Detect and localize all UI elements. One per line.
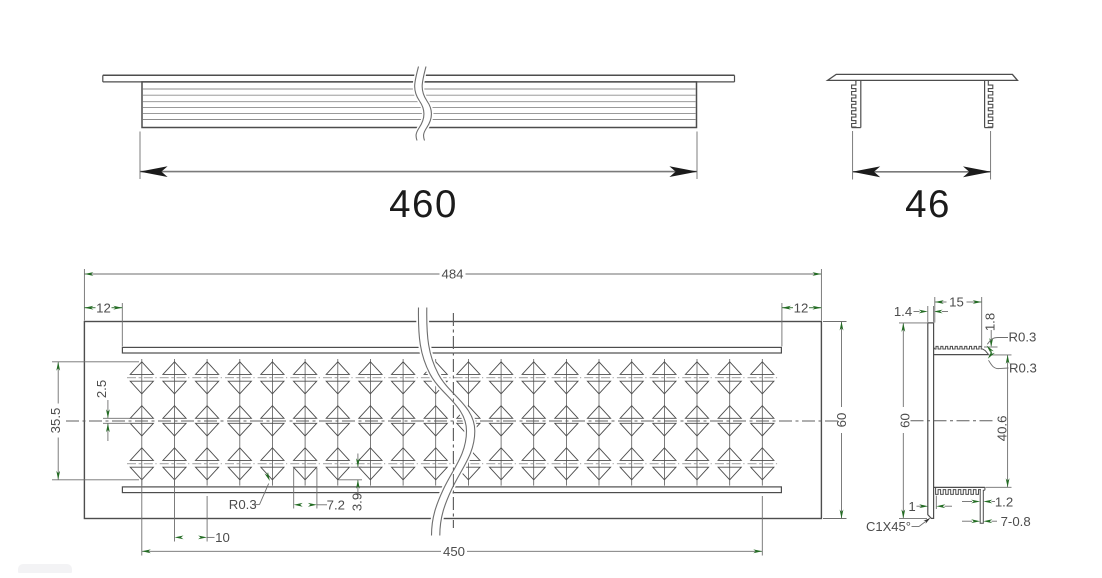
svg-text:12: 12 (96, 300, 111, 315)
svg-text:R0.3: R0.3 (229, 497, 257, 512)
svg-text:R0.3: R0.3 (1009, 361, 1037, 376)
svg-text:40.6: 40.6 (995, 416, 1010, 442)
svg-text:1.8: 1.8 (982, 313, 997, 331)
svg-text:12: 12 (794, 300, 809, 315)
svg-text:15: 15 (949, 295, 964, 310)
svg-text:450: 450 (443, 544, 465, 559)
svg-text:460: 460 (389, 183, 458, 226)
svg-text:7-0.8: 7-0.8 (1001, 514, 1031, 529)
svg-text:46: 46 (905, 183, 951, 226)
svg-text:R0.3: R0.3 (1009, 330, 1037, 345)
svg-text:2.5: 2.5 (94, 380, 109, 398)
svg-text:35.5: 35.5 (48, 408, 63, 434)
svg-text:C1X45°: C1X45° (866, 519, 911, 534)
svg-text:1.2: 1.2 (995, 494, 1013, 509)
svg-text:1.4: 1.4 (894, 304, 912, 319)
svg-text:7.2: 7.2 (327, 497, 345, 512)
svg-text:60: 60 (834, 413, 849, 428)
svg-text:3.9: 3.9 (350, 493, 365, 511)
svg-text:60: 60 (897, 413, 912, 428)
svg-text:1: 1 (908, 499, 915, 514)
svg-text:10: 10 (215, 530, 230, 545)
svg-text:484: 484 (441, 267, 463, 282)
